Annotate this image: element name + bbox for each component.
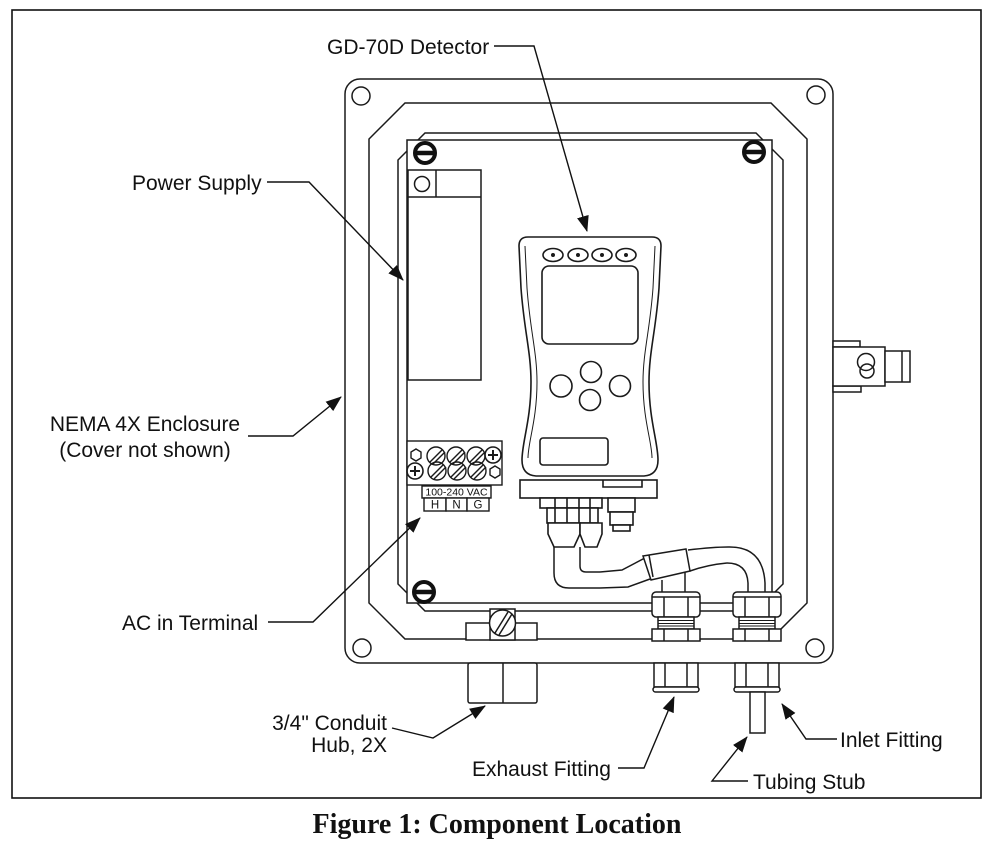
figure-caption: Figure 1: Component Location xyxy=(313,809,682,840)
label-tubing: Tubing Stub xyxy=(753,771,865,794)
detector-gas-port-block xyxy=(540,498,602,508)
port-nut xyxy=(548,523,580,547)
label-inlet: Inlet Fitting xyxy=(840,729,943,752)
label-exhaust: Exhaust Fitting xyxy=(472,758,611,781)
label-enclosure-line1: NEMA 4X Enclosure xyxy=(50,413,240,436)
pin-label-n: N xyxy=(452,500,460,512)
detector-cable-port xyxy=(610,512,633,525)
tubing-stub xyxy=(750,692,765,733)
pin-label-h: H xyxy=(431,500,439,512)
component-location-diagram: 100-240 VAC H N G xyxy=(0,0,989,851)
power-supply-body xyxy=(408,170,481,380)
port-nut xyxy=(580,523,602,547)
label-power-supply: Power Supply xyxy=(132,172,262,195)
label-ac-terminal: AC in Terminal xyxy=(122,612,258,635)
voltage-rating-text: 100-240 VAC xyxy=(425,487,488,499)
detector-cable-port xyxy=(613,525,630,531)
detector-base xyxy=(520,480,657,498)
pin-label-g: G xyxy=(474,500,483,512)
figure-page: 100-240 VAC H N G xyxy=(0,0,989,851)
power-supply xyxy=(408,170,481,380)
screw-slotted xyxy=(744,142,764,162)
label-enclosure-line2: (Cover not shown) xyxy=(59,439,231,462)
screw-slotted xyxy=(414,582,434,602)
label-conduit-line1: 3/4" Conduit xyxy=(272,712,387,735)
screw-slotted xyxy=(415,143,435,163)
label-detector: GD-70D Detector xyxy=(327,36,489,59)
detector-cable-port xyxy=(608,498,635,512)
label-conduit-line2: Hub, 2X xyxy=(311,734,387,757)
